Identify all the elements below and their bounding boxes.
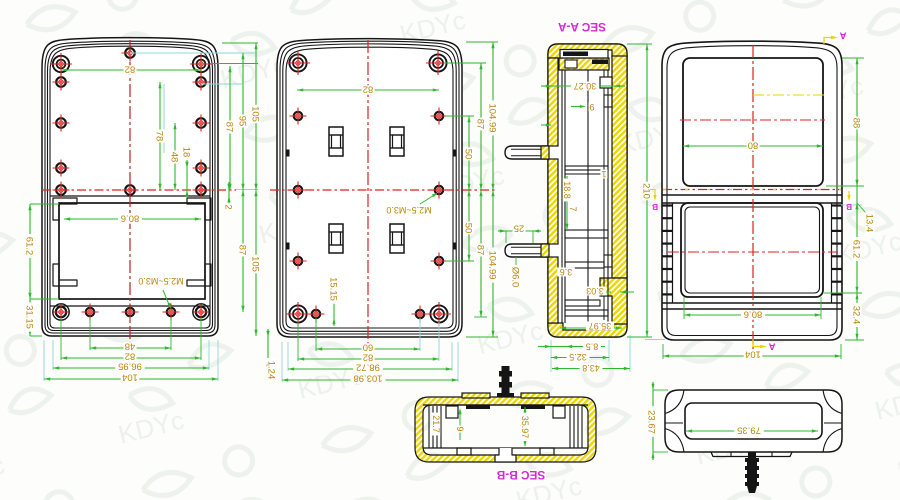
svg-text:30.27: 30.27 [574,81,597,91]
svg-text:50: 50 [463,223,474,234]
svg-text:105: 105 [250,256,261,272]
svg-text:M2.5~M3.0: M2.5~M3.0 [386,205,431,215]
svg-text:88: 88 [851,118,862,129]
svg-text:61.2: 61.2 [24,237,35,256]
svg-text:80.6: 80.6 [744,309,763,320]
svg-text:104.99: 104.99 [487,250,498,279]
svg-text:1.24: 1.24 [266,361,277,380]
svg-text:103.98: 103.98 [353,373,382,384]
svg-text:A: A [768,341,775,352]
svg-text:31.15: 31.15 [24,305,35,329]
svg-text:104: 104 [745,349,761,360]
svg-text:80.6: 80.6 [121,213,140,224]
svg-text:9: 9 [455,426,465,431]
svg-text:80: 80 [748,140,759,151]
svg-text:35.97: 35.97 [589,321,612,331]
svg-text:104: 104 [122,372,138,383]
svg-text:87: 87 [475,245,486,256]
svg-text:87: 87 [475,119,486,130]
svg-text:105: 105 [250,106,261,122]
svg-text:98.72: 98.72 [356,362,380,373]
svg-text:8.5: 8.5 [586,341,599,351]
svg-text:3.03: 3.03 [586,286,604,296]
svg-text:96.95: 96.95 [118,361,142,372]
svg-text:SEC A-A: SEC A-A [557,20,606,34]
svg-text:82: 82 [125,351,136,362]
svg-text:82: 82 [363,352,374,363]
svg-text:32.4: 32.4 [851,306,862,325]
svg-text:87: 87 [237,245,248,256]
svg-text:SEC B-B: SEC B-B [497,468,546,482]
svg-text:210: 210 [641,183,652,199]
svg-text:43.8: 43.8 [582,363,600,373]
svg-text:15.15: 15.15 [328,277,339,301]
svg-text:1: 1 [601,169,606,179]
svg-text:95: 95 [237,116,248,127]
svg-text:23.67: 23.67 [646,410,657,434]
svg-text:78: 78 [154,131,165,142]
svg-text:3.6: 3.6 [560,267,573,277]
svg-text:60: 60 [363,342,374,353]
svg-text:B: B [652,202,658,212]
svg-text:B: B [846,202,852,212]
svg-text:2: 2 [223,204,234,209]
svg-text:9: 9 [589,102,594,112]
svg-text:25: 25 [514,223,525,234]
svg-text:18: 18 [181,147,192,158]
svg-text:82: 82 [363,84,374,95]
svg-text:82: 82 [125,64,136,75]
svg-text:104.99: 104.99 [487,103,498,132]
svg-text:48: 48 [169,152,180,163]
svg-text:48: 48 [125,341,136,352]
svg-text:13.4: 13.4 [864,214,875,233]
svg-text:79.35: 79.35 [737,425,761,436]
svg-text:21.7: 21.7 [431,415,441,433]
svg-text:A: A [839,30,846,41]
svg-text:35.97: 35.97 [520,416,530,439]
svg-text:32.5: 32.5 [569,352,587,362]
svg-text:50: 50 [463,149,474,160]
svg-text:7: 7 [568,206,578,211]
svg-text:Ø6.0: Ø6.0 [510,267,521,288]
svg-text:M2.5~M3.0: M2.5~M3.0 [138,276,183,286]
svg-text:18.8: 18.8 [562,181,572,199]
svg-text:61.2: 61.2 [851,240,862,259]
svg-text:87: 87 [224,122,235,133]
